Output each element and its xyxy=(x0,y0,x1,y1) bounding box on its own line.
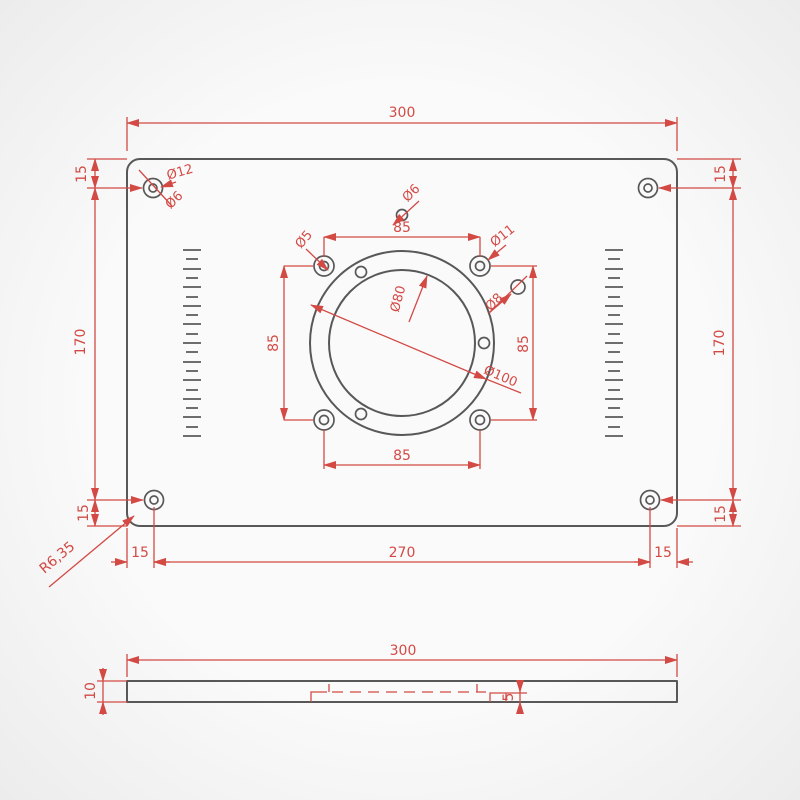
ring-hole xyxy=(356,409,367,420)
recess-step xyxy=(311,684,329,702)
dim-margin-bottom-right: 15 xyxy=(713,505,729,523)
extension-lines xyxy=(677,159,741,526)
ring-hole xyxy=(479,338,490,349)
vent-slots-left xyxy=(183,250,201,436)
label-pilot-hole: Ø6 xyxy=(400,182,424,206)
leader-line xyxy=(409,276,427,322)
extension-lines xyxy=(87,159,127,526)
dim-thickness: 10 xyxy=(83,682,99,700)
dim-side-width: 300 xyxy=(390,643,417,659)
corner-hole-top-right xyxy=(639,179,658,198)
dim-margin-top-right: 15 xyxy=(713,165,729,183)
extension-lines xyxy=(127,117,677,151)
side-view: 300 10 5 xyxy=(83,643,677,715)
top-view-dimensions xyxy=(49,117,741,587)
label-opening-dia: Ø80 xyxy=(388,284,409,314)
diameter-line xyxy=(311,305,486,379)
side-hole xyxy=(511,280,525,294)
bolt-hole-bottom-left xyxy=(314,410,334,430)
dim-margin-bottom-left: 15 xyxy=(76,504,92,522)
label-bolt-hole: Ø5 xyxy=(293,228,316,252)
dim-margin-top-left: 15 xyxy=(74,165,90,183)
router-plate-drawing: 300 15 170 15 15 170 15 15 270 15 R6,35 … xyxy=(0,0,800,800)
dim-bolt-spacing-bottom: 85 xyxy=(393,448,411,464)
label-side-hole: Ø8 xyxy=(483,291,507,315)
label-corner-hole-inner: Ø6 xyxy=(163,189,187,213)
dim-recess-depth: 5 xyxy=(501,693,517,702)
extension-lines xyxy=(284,266,313,420)
leader-line xyxy=(306,249,328,270)
dim-bolt-spacing-right: 85 xyxy=(516,335,532,353)
dim-bolt-spacing-top: 85 xyxy=(393,220,411,236)
dim-height-right: 170 xyxy=(712,330,728,357)
corner-hole-top-left xyxy=(144,179,163,198)
ring-hole xyxy=(356,267,367,278)
corner-hole-bottom-left xyxy=(145,491,164,510)
plate-outline xyxy=(127,159,677,526)
top-view-labels: 300 15 170 15 15 170 15 15 270 15 R6,35 … xyxy=(37,105,729,577)
extension-lines xyxy=(97,681,127,702)
dim-height-left: 170 xyxy=(73,329,89,356)
side-profile xyxy=(127,681,677,702)
dim-bottom-offset-left: 15 xyxy=(131,545,149,561)
bolt-hole-top-right xyxy=(470,256,490,276)
label-corner-hole-outer: Ø12 xyxy=(165,162,195,184)
bolt-hole-bottom-right xyxy=(470,410,490,430)
corner-hole-bottom-right xyxy=(641,491,660,510)
top-view xyxy=(127,159,677,526)
dim-bolt-spacing-left: 85 xyxy=(266,334,282,352)
label-counterbore: Ø11 xyxy=(488,222,518,250)
dim-corner-radius: R6,35 xyxy=(37,539,79,578)
extension-lines xyxy=(324,237,480,257)
pilot-hole xyxy=(397,210,408,221)
dim-bottom-offset-right: 15 xyxy=(654,545,672,561)
dim-bottom-span: 270 xyxy=(389,545,416,561)
vent-slots-right xyxy=(605,250,623,436)
dim-overall-width: 300 xyxy=(389,105,416,121)
label-recess-dia: Ø100 xyxy=(481,363,519,391)
